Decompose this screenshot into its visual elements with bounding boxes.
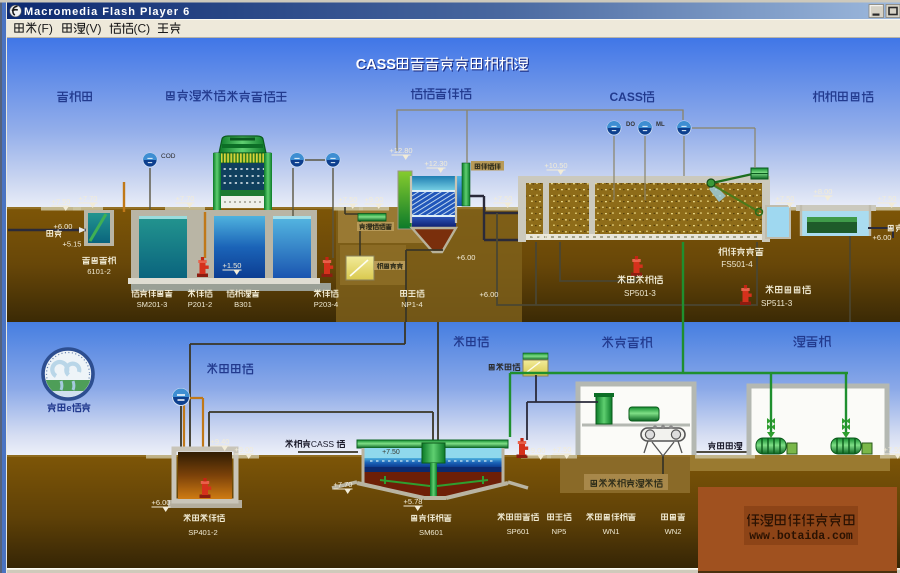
svg-text:+9.00: +9.00: [235, 445, 254, 454]
svg-text:B301: B301: [234, 300, 252, 309]
svg-text:+6.00: +6.00: [873, 233, 892, 242]
svg-text:+7.70: +7.70: [334, 480, 353, 489]
svg-text:SM601: SM601: [419, 528, 443, 537]
svg-text:+7.50: +7.50: [776, 194, 795, 203]
svg-text:+6.00: +6.00: [54, 222, 73, 231]
svg-text:+9.00: +9.00: [527, 446, 546, 455]
svg-text:SP511-3: SP511-3: [761, 299, 793, 308]
svg-text:CASS: CASS: [356, 57, 397, 73]
svg-text:+6.00: +6.00: [152, 498, 171, 507]
svg-text:+7.70: +7.70: [176, 194, 195, 203]
svg-text:6101-2: 6101-2: [87, 267, 111, 276]
svg-text:+7.50: +7.50: [553, 445, 572, 454]
svg-text:+7.70: +7.70: [79, 194, 98, 203]
svg-text:+7.50: +7.50: [382, 449, 400, 456]
svg-text:+7.50: +7.50: [52, 197, 71, 206]
svg-text:SP501-3: SP501-3: [624, 289, 656, 298]
svg-text:+7.50: +7.50: [878, 194, 897, 203]
svg-text:SP601: SP601: [507, 527, 530, 536]
svg-text:+6.00: +6.00: [532, 232, 551, 241]
svg-text:(V): (V): [86, 22, 102, 36]
svg-text:+6.00: +6.00: [457, 253, 476, 262]
svg-text:CASS: CASS: [610, 90, 643, 104]
svg-text:+9.40: +9.40: [211, 437, 230, 446]
svg-text:+7.50: +7.50: [494, 194, 513, 203]
svg-text:e: e: [66, 403, 71, 414]
svg-text:www.botaida.com: www.botaida.com: [749, 530, 853, 543]
svg-text:SM201-3: SM201-3: [137, 300, 168, 309]
svg-text:Macromedia Flash Player 6: Macromedia Flash Player 6: [24, 6, 190, 18]
svg-text:+6.00: +6.00: [480, 290, 499, 299]
svg-text:WN1: WN1: [603, 527, 620, 536]
svg-text:+5.78: +5.78: [404, 497, 423, 506]
svg-text:WN2: WN2: [665, 527, 682, 536]
svg-text:(C): (C): [134, 22, 151, 36]
svg-text:+9.00: +9.00: [365, 195, 384, 204]
svg-text:P201-2: P201-2: [188, 300, 213, 309]
svg-text:NP5: NP5: [552, 527, 567, 536]
svg-text:SP401-2: SP401-2: [188, 528, 218, 537]
svg-text:+1.50: +1.50: [223, 261, 242, 270]
svg-text:DO: DO: [626, 122, 635, 128]
svg-text:+7.50: +7.50: [884, 445, 900, 454]
svg-text:CASS: CASS: [311, 439, 334, 449]
svg-text:NP1-4: NP1-4: [401, 300, 423, 309]
svg-text:P203-4: P203-4: [314, 300, 339, 309]
svg-text:+12.80: +12.80: [389, 146, 412, 155]
svg-text:COD: COD: [161, 153, 176, 160]
svg-text:+5.15: +5.15: [63, 240, 82, 249]
svg-text:+7.50: +7.50: [339, 195, 358, 204]
svg-text:ML: ML: [656, 122, 665, 128]
svg-text:+10.50: +10.50: [544, 161, 567, 170]
svg-text:+8.00: +8.00: [814, 187, 833, 196]
svg-text:(F): (F): [38, 22, 53, 36]
svg-text:+12.30: +12.30: [424, 159, 447, 168]
svg-text:FS501-4: FS501-4: [721, 260, 753, 269]
